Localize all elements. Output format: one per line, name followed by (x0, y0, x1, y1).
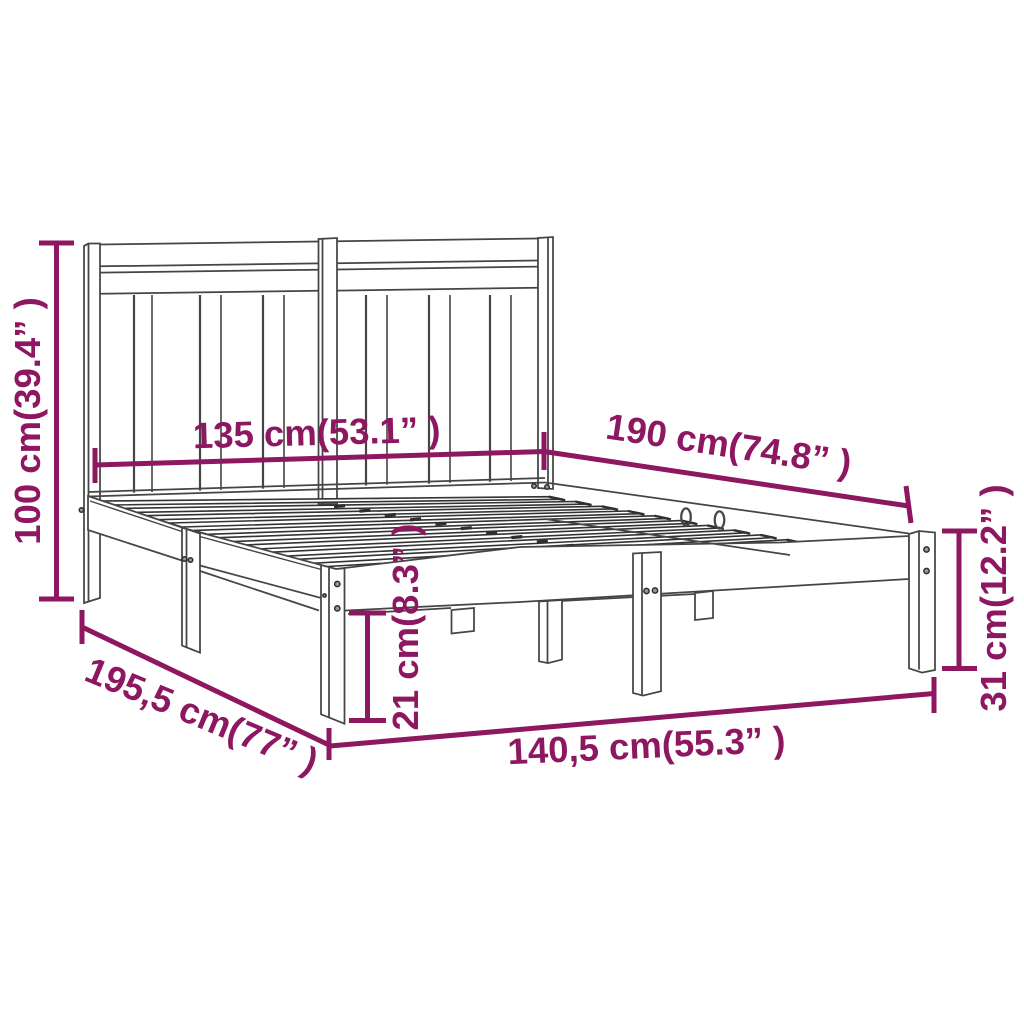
svg-text:100 cm(39.4” ): 100 cm(39.4” ) (7, 297, 48, 545)
svg-text:31 cm(12.2” ): 31 cm(12.2” ) (973, 484, 1014, 711)
svg-text:135 cm(53.1” ): 135 cm(53.1” ) (192, 409, 441, 456)
svg-text:21 cm(8.3” ): 21 cm(8.3” ) (385, 524, 426, 731)
